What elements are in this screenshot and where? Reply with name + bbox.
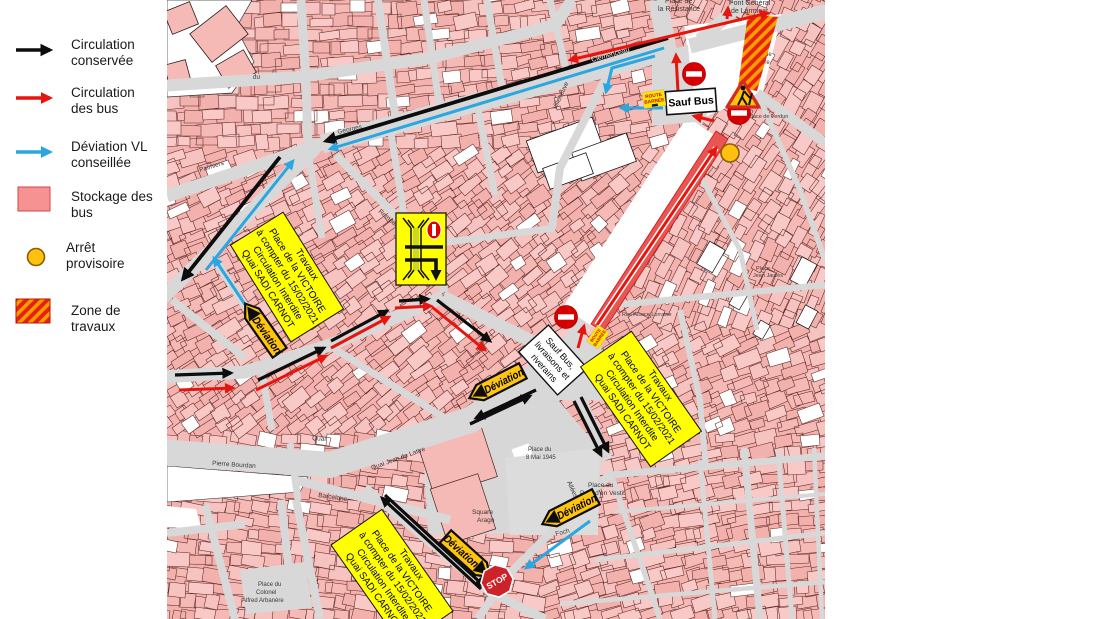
svg-text:Pont Général: Pont Général xyxy=(729,0,771,7)
svg-text:Place du: Place du xyxy=(588,482,614,489)
svg-text:bus: bus xyxy=(71,205,93,220)
svg-text:Alfred Arbanère: Alfred Arbanère xyxy=(242,598,284,604)
svg-text:Quai: Quai xyxy=(312,435,326,443)
svg-text:Déviation VL: Déviation VL xyxy=(71,139,148,154)
svg-text:Place du: Place du xyxy=(528,447,551,453)
svg-text:Place de Verdun: Place de Verdun xyxy=(748,114,788,120)
svg-text:conseillée: conseillée xyxy=(71,155,131,170)
svg-text:travaux: travaux xyxy=(71,319,116,334)
svg-text:Square: Square xyxy=(472,509,493,516)
svg-text:Place: Place xyxy=(756,266,770,272)
svg-text:Circulation: Circulation xyxy=(71,85,135,100)
svg-text:Arago: Arago xyxy=(477,517,495,524)
svg-text:Colonel: Colonel xyxy=(256,590,276,596)
svg-text:des bus: des bus xyxy=(71,101,119,116)
svg-text:Stockage des: Stockage des xyxy=(71,189,153,204)
svg-text:la Résistance: la Résistance xyxy=(658,6,700,13)
svg-text:du: du xyxy=(253,74,261,81)
svg-text:Jean Jaurès: Jean Jaurès xyxy=(753,273,783,279)
svg-text:Place de: Place de xyxy=(665,0,692,5)
svg-text:8 Mai 1945: 8 Mai 1945 xyxy=(526,455,556,461)
svg-text:Zone de: Zone de xyxy=(71,303,121,318)
svg-text:provisoire: provisoire xyxy=(66,256,125,271)
svg-text:Place du: Place du xyxy=(258,582,281,588)
svg-text:conservée: conservée xyxy=(71,53,133,68)
svg-text:Circulation: Circulation xyxy=(71,37,135,52)
svg-text:Rue Alsace Lorraine: Rue Alsace Lorraine xyxy=(622,312,672,318)
svg-text:Arrêt: Arrêt xyxy=(66,240,96,255)
